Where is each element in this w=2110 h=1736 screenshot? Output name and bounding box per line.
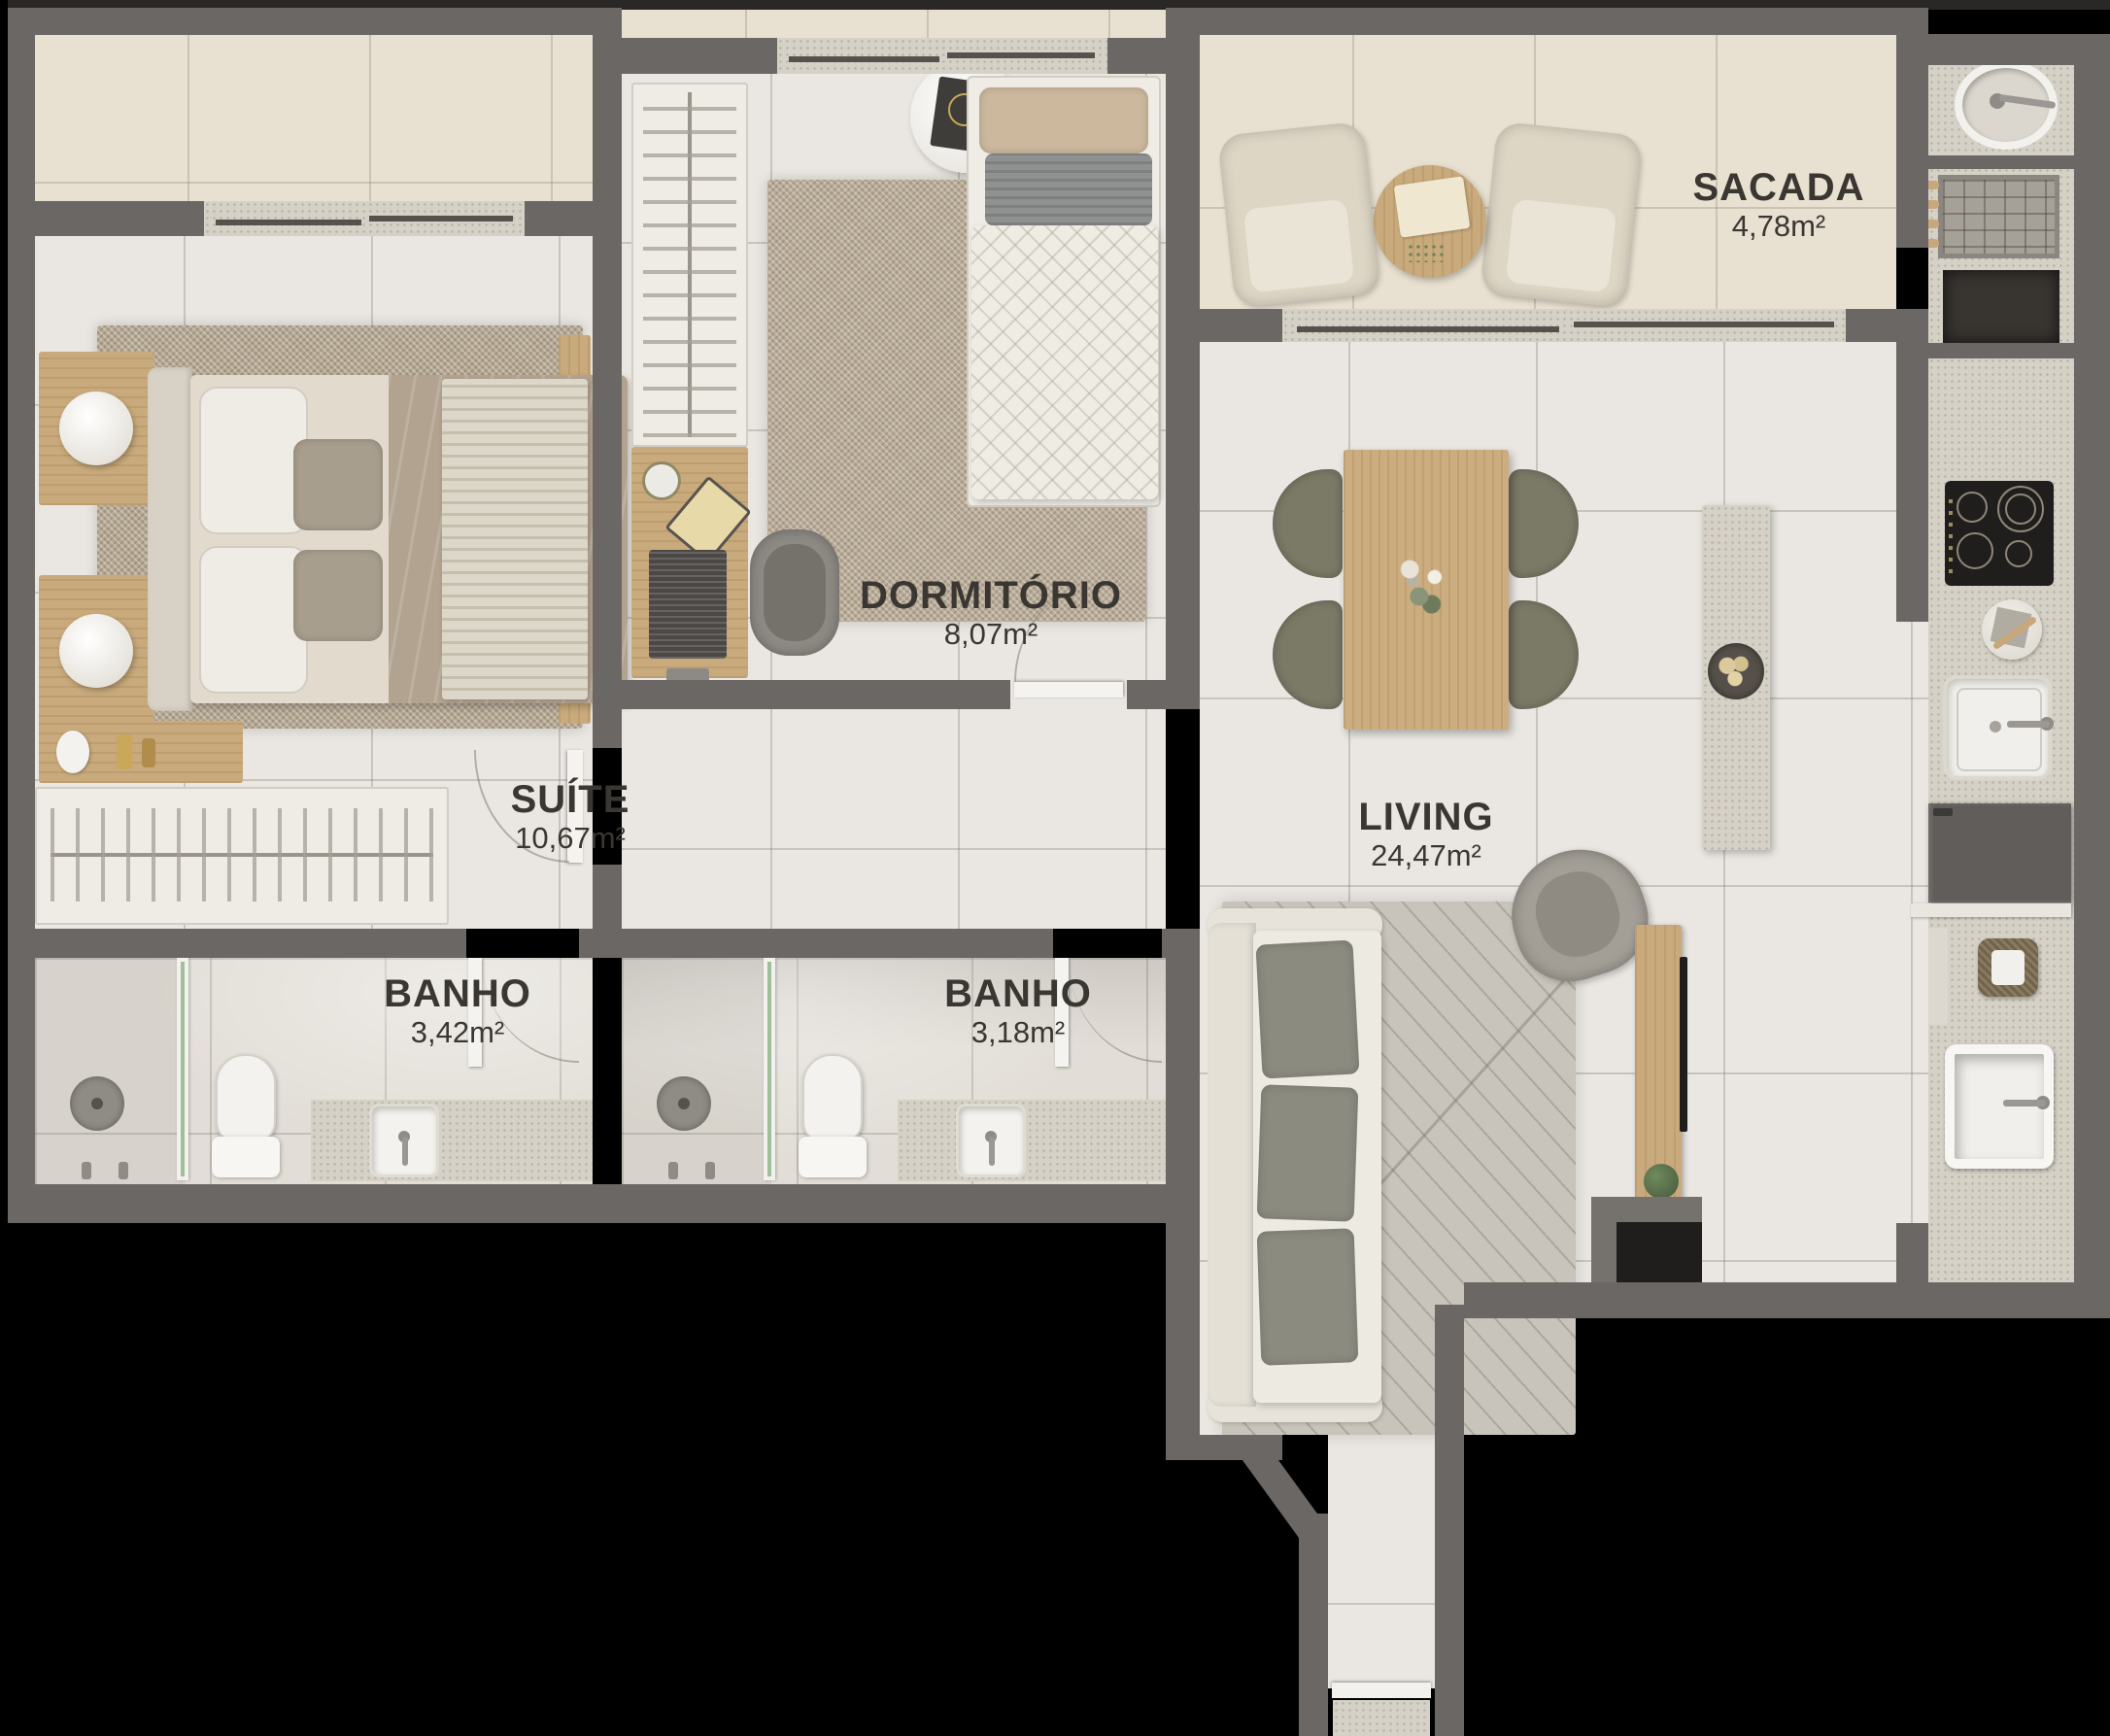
window-track	[947, 52, 1095, 58]
room-name: BANHO	[384, 973, 531, 1015]
sofa-cushion	[1255, 939, 1359, 1078]
gold-bottle-decor	[117, 734, 132, 769]
garlic	[1716, 653, 1754, 690]
table-flowers	[1391, 546, 1453, 624]
faucet-arm	[2003, 1100, 2046, 1106]
sofa-cushion	[1257, 1228, 1359, 1365]
wall	[622, 680, 1010, 709]
vanity-counter	[898, 1100, 1166, 1181]
shower-knob	[705, 1162, 715, 1179]
wall	[1299, 1514, 1328, 1736]
laptop	[649, 550, 727, 659]
wall	[1162, 929, 1200, 958]
toilet-bowl	[216, 1054, 276, 1143]
double-bed-headboard	[148, 367, 192, 711]
fridge	[1928, 803, 2071, 902]
entry-doormat	[1333, 1700, 1430, 1736]
room-label-suite: SUÍTE 10,67m²	[511, 779, 630, 856]
pillow	[199, 387, 308, 534]
burner	[1957, 492, 1988, 523]
window-track	[369, 216, 513, 221]
wall	[622, 38, 777, 74]
wall	[1896, 65, 1928, 248]
single-bed-pillow	[979, 87, 1148, 153]
toilet-bowl	[802, 1054, 863, 1143]
room-label-living: LIVING 24,47m²	[1358, 797, 1493, 873]
accent-pillow	[293, 439, 383, 530]
room-name: BANHO	[944, 973, 1092, 1015]
swan-decor	[56, 731, 89, 773]
room-label-banho-suite: BANHO 3,42m²	[384, 973, 531, 1050]
counter-shelf	[1911, 903, 2071, 917]
towel	[1991, 950, 2025, 985]
wall	[1200, 309, 1282, 342]
shower-knob	[82, 1162, 91, 1179]
wall	[1166, 8, 1200, 709]
toilet-tank	[799, 1137, 867, 1177]
wall	[1200, 8, 1896, 35]
room-label-banho-social: BANHO 3,18m²	[944, 973, 1092, 1050]
single-bed-duvet	[971, 225, 1158, 499]
room-area: 10,67m²	[511, 821, 630, 856]
wall	[1464, 1282, 2110, 1318]
vanity-counter	[311, 1100, 593, 1181]
room-name: SACADA	[1692, 167, 1864, 209]
window-track	[216, 220, 361, 225]
shower-head-center	[91, 1098, 103, 1109]
window-track	[1297, 326, 1559, 332]
burner	[1957, 532, 1993, 569]
wall	[593, 865, 622, 929]
shower-head-center	[678, 1098, 690, 1109]
room-label-sacada: SACADA 4,78m²	[1692, 167, 1864, 244]
shower-knob	[119, 1162, 128, 1179]
striped-throw-blanket	[442, 379, 588, 699]
room-area: 24,47m²	[1358, 838, 1493, 873]
faucet-arm	[402, 1137, 408, 1166]
room-label-dormitorio: DORMITÓRIO 8,07m²	[860, 575, 1122, 652]
armchair-cushion	[1243, 199, 1354, 293]
wall	[1928, 155, 2074, 169]
room-name: LIVING	[1358, 797, 1493, 838]
wall	[8, 8, 622, 35]
shower-area	[35, 958, 185, 1184]
floor-plan: SACADA 4,78m² DORMITÓRIO 8,07m² SUÍTE 10…	[0, 0, 2110, 1736]
burner	[2005, 540, 2032, 567]
tv	[1680, 957, 1687, 1132]
wall	[8, 236, 35, 1223]
shower-glass-green-edge	[767, 962, 771, 1176]
duct-niche	[1943, 270, 2059, 343]
wall	[579, 929, 1053, 958]
wall	[8, 8, 35, 236]
wardrobe-hangers	[51, 808, 433, 902]
room-area: 3,18m²	[944, 1015, 1092, 1050]
pillow	[199, 546, 308, 694]
window-track	[789, 56, 939, 62]
room-area: 8,07m²	[860, 617, 1122, 652]
terrace-floor	[35, 10, 593, 201]
sofa-backrest	[1208, 923, 1256, 1407]
shower-area	[622, 958, 771, 1184]
drain	[1990, 721, 2001, 732]
cabinet-niche	[1617, 1222, 1702, 1282]
entry-corridor-floor	[1328, 1435, 1435, 1688]
sofa-cushion	[1257, 1084, 1359, 1221]
burner-inner	[2005, 494, 2036, 525]
wall	[593, 680, 622, 748]
entry-door-leaf	[1332, 1683, 1431, 1698]
table-lamp	[59, 391, 133, 465]
exterior-strip-floor	[593, 10, 1166, 38]
fridge-handle	[1933, 808, 1953, 816]
washer-edge	[1928, 928, 1948, 1025]
shower-knob	[668, 1162, 678, 1179]
toilet-tank	[212, 1137, 280, 1177]
wall	[8, 929, 466, 958]
room-area: 3,42m²	[384, 1015, 531, 1050]
wall	[593, 35, 622, 680]
serving-tray	[1394, 176, 1471, 237]
gold-bottle-decor	[142, 738, 155, 767]
wall	[1896, 330, 1928, 622]
hallway-floor	[622, 680, 1166, 929]
faucet-arm	[989, 1137, 995, 1166]
wall	[35, 201, 204, 236]
fern-decor	[1407, 243, 1446, 262]
folded-blanket	[985, 153, 1152, 225]
accent-pillow	[293, 550, 383, 641]
wardrobe-hangers	[643, 92, 736, 437]
armchair-cushion	[1506, 199, 1617, 293]
cooktop-knobs	[1949, 495, 1953, 573]
window-track	[1574, 322, 1834, 327]
shower-glass-green-edge	[181, 962, 185, 1176]
room-name: SUÍTE	[511, 779, 630, 821]
faucet-arm	[2007, 721, 2050, 728]
plant	[1644, 1164, 1679, 1199]
wall	[8, 1184, 1200, 1223]
room-name: DORMITÓRIO	[860, 575, 1122, 617]
drying-rack	[1938, 175, 2059, 258]
table-lamp	[59, 614, 133, 688]
dormitorio-door-leaf	[1014, 682, 1123, 698]
wall	[1896, 8, 1928, 65]
wall	[1928, 343, 2074, 358]
wall	[1435, 1305, 1464, 1736]
office-chair-seat	[764, 544, 826, 641]
desk-plant	[645, 464, 678, 497]
room-area: 4,78m²	[1692, 209, 1864, 244]
wall	[2074, 34, 2110, 1318]
